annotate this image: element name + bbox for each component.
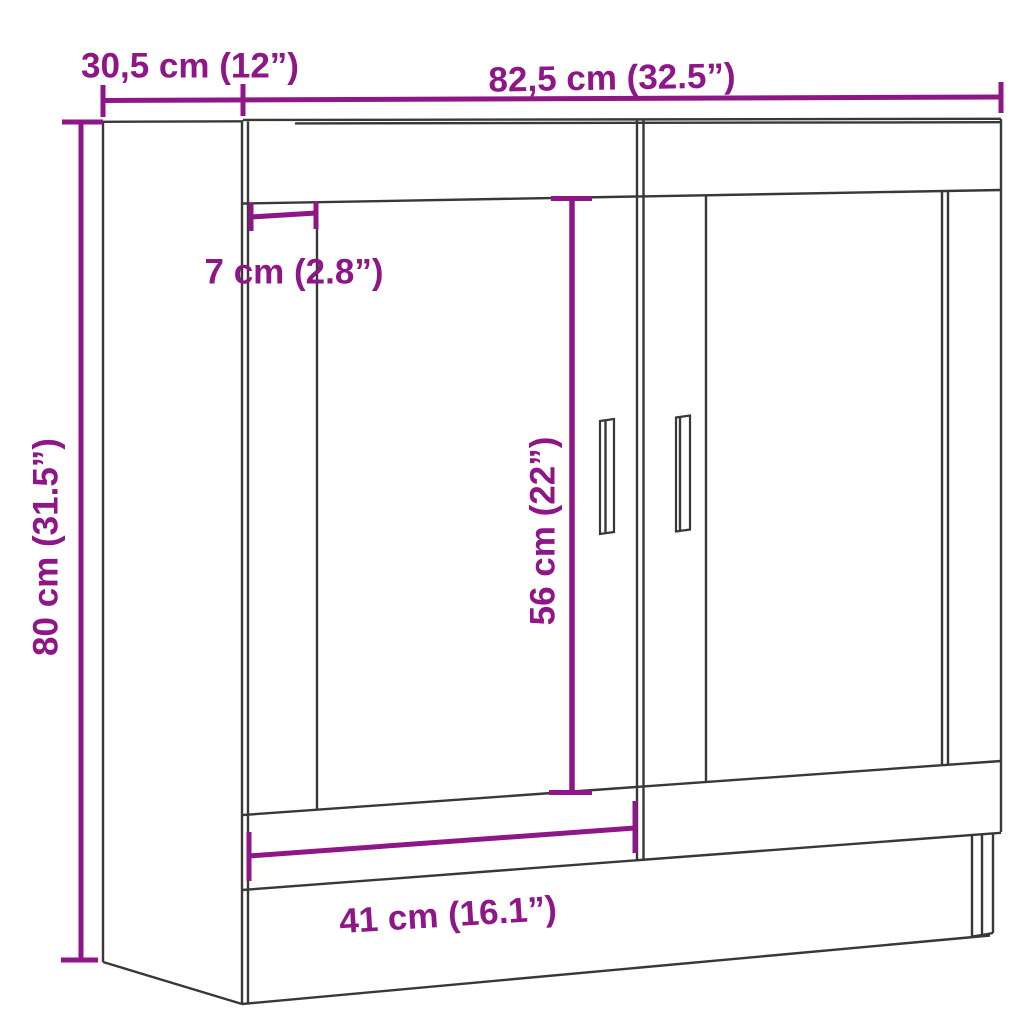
width-dimension-label: 82,5 cm (32.5”) bbox=[488, 58, 736, 97]
right-leg bbox=[972, 834, 993, 937]
furniture-dimension-diagram: 30,5 cm (12”) 82,5 cm (32.5”) 7 cm (2.8”… bbox=[0, 0, 1024, 1024]
cabinet-line-drawing bbox=[0, 0, 1024, 1024]
depth-dimension-label: 30,5 cm (12”) bbox=[81, 49, 299, 84]
handle-dimension-label: 56 cm (22”) bbox=[526, 437, 561, 626]
left-door-handle bbox=[600, 419, 614, 534]
right-door-handle bbox=[676, 416, 690, 532]
frame-dimension-label: 7 cm (2.8”) bbox=[205, 255, 384, 290]
height-dimension-label: 80 cm (31.5”) bbox=[29, 438, 64, 656]
